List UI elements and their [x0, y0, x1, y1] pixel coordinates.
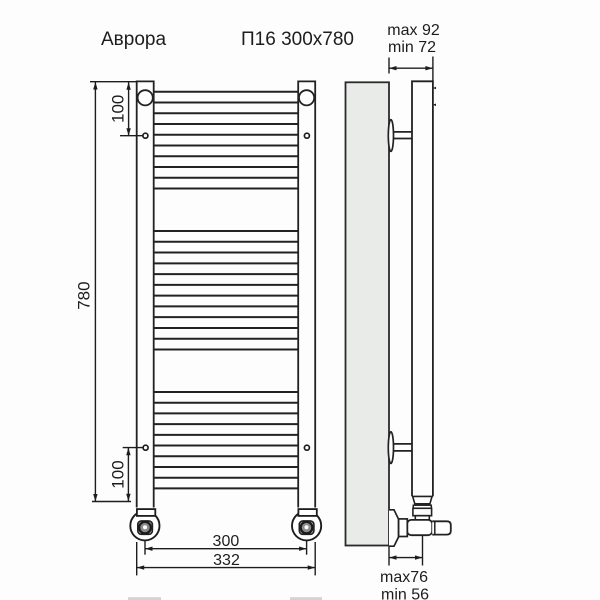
- svg-text:100: 100: [108, 95, 127, 123]
- svg-text:П16 300x780: П16 300x780: [241, 29, 354, 50]
- svg-text:332: 332: [213, 552, 240, 569]
- svg-text:Аврора: Аврора: [101, 29, 166, 50]
- svg-text:780: 780: [74, 281, 93, 309]
- svg-text:100: 100: [109, 460, 128, 488]
- svg-text:max 92: max 92: [387, 22, 440, 39]
- svg-text:max76: max76: [380, 569, 428, 586]
- svg-text:min 72: min 72: [388, 39, 436, 56]
- svg-text:300: 300: [213, 533, 240, 550]
- svg-text:min 56: min 56: [381, 587, 429, 600]
